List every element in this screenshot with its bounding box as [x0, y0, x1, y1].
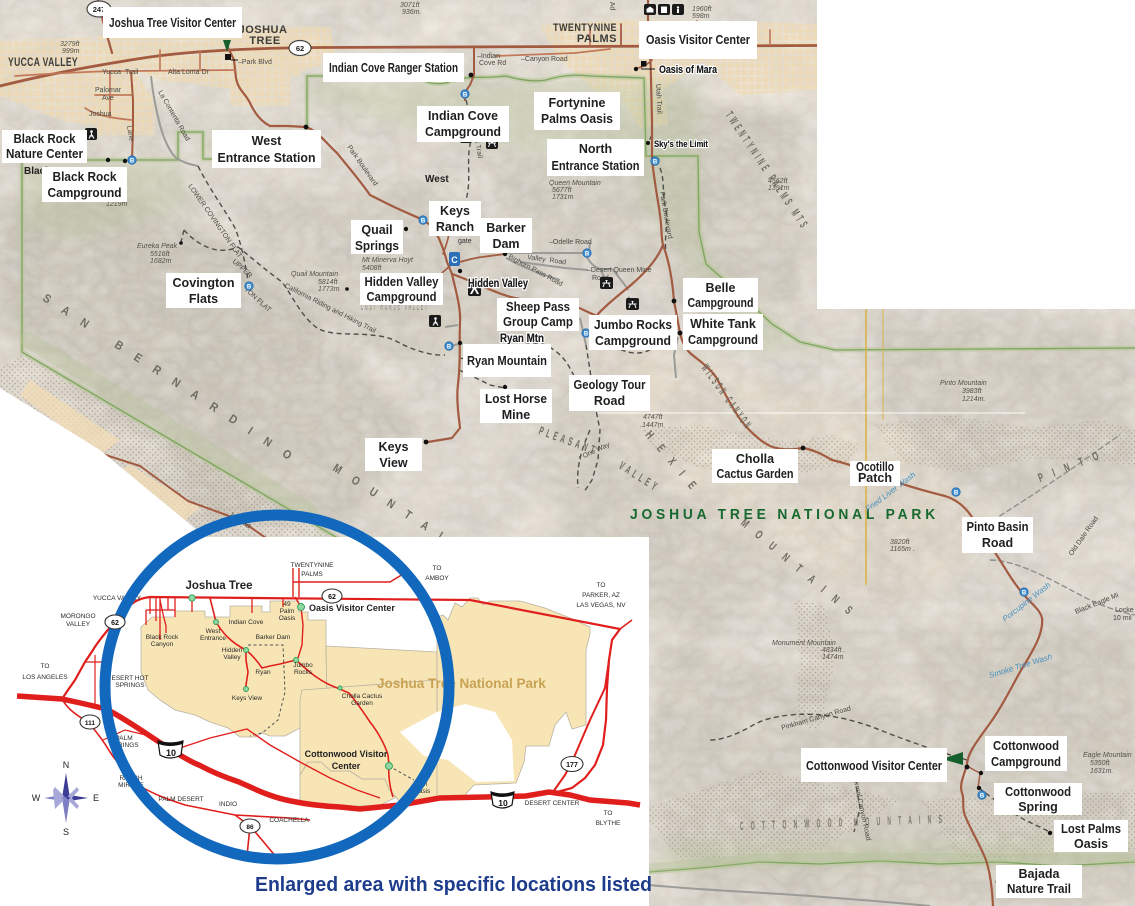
svg-text:Joshua Tree: Joshua Tree — [185, 580, 252, 592]
svg-text:B: B — [653, 160, 658, 166]
svg-text:B: B — [584, 332, 589, 338]
svg-text:5350ft: 5350ft — [1090, 760, 1111, 767]
svg-text:Black Rock: Black Rock — [146, 634, 179, 641]
svg-text:Oasis Visitor Center: Oasis Visitor Center — [646, 33, 750, 47]
svg-text:4834ft .: 4834ft . — [822, 647, 845, 654]
svg-text:B: B — [585, 252, 590, 258]
svg-text:Entrance Station: Entrance Station — [552, 159, 640, 173]
svg-text:3983ft: 3983ft — [962, 388, 983, 395]
svg-text:Ryan Mountain: Ryan Mountain — [467, 354, 547, 368]
svg-text:B: B — [1022, 591, 1027, 597]
svg-text:Oasis: Oasis — [1074, 837, 1108, 851]
svg-text:Ryan Mtn: Ryan Mtn — [500, 333, 544, 345]
svg-text:Queen Mountain: Queen Mountain — [549, 180, 601, 187]
svg-text:Covington: Covington — [173, 276, 235, 290]
svg-text:Geology Tour: Geology Tour — [574, 378, 646, 392]
svg-text:YUCCA VALLEY: YUCCA VALLEY — [8, 55, 78, 69]
svg-text:1214m.: 1214m. — [962, 396, 985, 403]
svg-text:BLYTHE: BLYTHE — [596, 820, 621, 827]
svg-text:Oasis Visitor Center: Oasis Visitor Center — [309, 603, 395, 613]
svg-text:C: C — [451, 255, 458, 265]
svg-text:PALMS: PALMS — [577, 33, 617, 45]
svg-text:.1447m: .1447m — [640, 422, 664, 429]
svg-text:Keys: Keys — [440, 204, 470, 218]
svg-text:Campground: Campground — [425, 125, 501, 139]
svg-text:MORONGO: MORONGO — [60, 613, 95, 620]
svg-text:Campground: Campground — [688, 296, 754, 310]
svg-text:Fortynine: Fortynine — [549, 96, 606, 110]
svg-text:W: W — [32, 793, 41, 803]
svg-text:Entrance: Entrance — [200, 635, 226, 642]
svg-text:INDIO: INDIO — [219, 801, 237, 808]
svg-text:Entrance Station: Entrance Station — [218, 151, 316, 165]
svg-text:Locke: Locke — [1115, 607, 1134, 614]
svg-text:Pinto Mountain: Pinto Mountain — [940, 380, 987, 387]
svg-text:Sky's the Limit: Sky's the Limit — [654, 139, 709, 150]
svg-text:TREE: TREE — [249, 35, 280, 47]
svg-text:Hidden Valley: Hidden Valley — [365, 275, 439, 289]
svg-text:–Indian: –Indian — [477, 53, 500, 60]
svg-text:Bajada: Bajada — [1019, 867, 1061, 881]
svg-text:Monument Mountain: Monument Mountain — [772, 640, 836, 647]
svg-text:JOSHUA TREE NATIONAL PARK: JOSHUA TREE NATIONAL PARK — [630, 507, 939, 523]
svg-text:177: 177 — [566, 762, 578, 769]
svg-text:86: 86 — [246, 824, 254, 831]
svg-text:Barker: Barker — [486, 221, 526, 235]
svg-text:–Odelle Road: –Odelle Road — [549, 239, 592, 246]
svg-text:AMBOY: AMBOY — [425, 575, 449, 582]
svg-text:B: B — [954, 491, 959, 497]
svg-text:Mine: Mine — [502, 408, 531, 422]
svg-text:Valley: Valley — [223, 654, 241, 661]
svg-text:4562ft: 4562ft — [768, 178, 789, 185]
svg-text:Ryan: Ryan — [255, 669, 271, 676]
svg-text:Palomar: Palomar — [95, 87, 122, 94]
svg-text:1731m: 1731m — [552, 194, 574, 201]
svg-text:Campground: Campground — [991, 755, 1061, 769]
svg-text:4747ft: 4747ft — [643, 414, 664, 421]
svg-text:Ranch: Ranch — [436, 220, 474, 234]
svg-text:5677ft: 5677ft — [552, 187, 573, 194]
svg-text:TO: TO — [433, 565, 442, 572]
svg-text:Enlarged area with specific lo: Enlarged area with specific locations li… — [255, 873, 652, 896]
svg-text:Patch: Patch — [858, 471, 892, 485]
svg-text:gate: gate — [458, 238, 472, 245]
svg-text:SPRINGS: SPRINGS — [115, 682, 145, 689]
svg-text:62: 62 — [296, 44, 304, 53]
svg-text:1682m: 1682m — [150, 258, 172, 265]
svg-text:North: North — [579, 142, 612, 156]
svg-text:1474m: 1474m — [822, 654, 844, 661]
svg-text:1165m .: 1165m . — [890, 546, 915, 553]
svg-text:E: E — [93, 793, 99, 803]
svg-text:–Desert Queen Mine: –Desert Queen Mine — [587, 267, 652, 274]
svg-text:Sheep Pass: Sheep Pass — [506, 300, 570, 314]
svg-text:Indian Cove Ranger Station: Indian Cove Ranger Station — [329, 61, 458, 75]
svg-text:Jumbo Rocks: Jumbo Rocks — [594, 318, 672, 332]
svg-text:B: B — [421, 219, 426, 225]
svg-text:Cholla Cactus: Cholla Cactus — [342, 693, 383, 700]
svg-text:1631m.: 1631m. — [1090, 768, 1113, 775]
svg-text:B: B — [980, 794, 985, 800]
svg-text:PARKER, AZ: PARKER, AZ — [582, 592, 620, 599]
svg-text:Ave: Ave — [102, 95, 114, 102]
svg-text:Canyon: Canyon — [151, 641, 174, 648]
svg-text:62: 62 — [111, 620, 119, 627]
svg-text:Cottonwood Visitor: Cottonwood Visitor — [305, 749, 388, 759]
svg-text:Pinto Basin: Pinto Basin — [967, 520, 1029, 534]
svg-text:Eagle Mountain: Eagle Mountain — [1083, 752, 1132, 759]
svg-text:N: N — [63, 760, 70, 770]
svg-text:Quail: Quail — [361, 223, 392, 237]
svg-text:Dam: Dam — [492, 237, 519, 251]
svg-text:Road: Road — [982, 536, 1013, 550]
svg-text:TO: TO — [604, 810, 613, 817]
svg-text:S: S — [63, 827, 69, 837]
svg-text:West: West — [206, 628, 221, 635]
svg-text:Center: Center — [332, 761, 361, 771]
svg-text:–Park Blvd: –Park Blvd — [238, 59, 272, 66]
svg-text:Lost Palms: Lost Palms — [1061, 822, 1121, 836]
svg-text:West: West — [425, 174, 449, 185]
svg-text:White Tank: White Tank — [690, 317, 756, 331]
svg-text:10 mil: 10 mil — [1113, 615, 1132, 622]
svg-text:3820ft: 3820ft — [890, 539, 911, 546]
svg-text:B: B — [463, 93, 468, 99]
svg-text:Campground: Campground — [688, 333, 758, 347]
svg-text:Cottonwood: Cottonwood — [993, 739, 1059, 753]
svg-text:10: 10 — [166, 748, 176, 758]
svg-text:TO: TO — [597, 582, 606, 589]
svg-text:Cove Rd: Cove Rd — [479, 60, 506, 67]
svg-text:Group Camp: Group Camp — [503, 315, 573, 329]
svg-text:49: 49 — [283, 601, 291, 608]
svg-text:Palm: Palm — [280, 608, 295, 615]
svg-text:Cottonwood: Cottonwood — [1005, 785, 1071, 799]
svg-text:Joshua Tree Visitor Center: Joshua Tree Visitor Center — [109, 16, 236, 30]
svg-text:Joshua: Joshua — [89, 111, 112, 118]
svg-text:View: View — [379, 456, 408, 470]
svg-text:1960ft: 1960ft — [692, 6, 713, 13]
svg-text:111: 111 — [85, 720, 96, 727]
svg-text:Cottonwood Visitor Center: Cottonwood Visitor Center — [806, 759, 942, 773]
svg-text:TO: TO — [41, 663, 50, 670]
svg-text:1773m: 1773m — [318, 286, 340, 293]
svg-text:5408ft: 5408ft — [362, 265, 383, 272]
svg-text:Indian Cove: Indian Cove — [428, 109, 498, 123]
svg-text:Keys: Keys — [379, 440, 409, 454]
svg-text:ESERT HOT: ESERT HOT — [112, 675, 149, 682]
svg-text:VALLEY: VALLEY — [66, 621, 91, 628]
svg-text:Alta Loma Dr: Alta Loma Dr — [168, 69, 210, 76]
svg-text:10: 10 — [498, 798, 508, 808]
svg-text:B: B — [247, 285, 252, 291]
svg-text:Hidden Valley: Hidden Valley — [468, 278, 528, 290]
svg-text:Yucca Trail: Yucca Trail — [102, 69, 139, 76]
svg-text:Oasis: Oasis — [279, 615, 296, 622]
svg-text:PALMS: PALMS — [301, 571, 323, 578]
svg-text:Campground: Campground — [595, 334, 671, 348]
svg-text:Ad: Ad — [608, 2, 616, 11]
svg-text:Garden: Garden — [351, 700, 373, 707]
svg-text:Lost Horse: Lost Horse — [485, 392, 547, 406]
svg-text:Belle: Belle — [706, 281, 736, 295]
svg-text:Rocks: Rocks — [294, 669, 313, 676]
svg-text:Black Rock: Black Rock — [53, 170, 117, 184]
svg-text:Jumbo: Jumbo — [293, 662, 313, 669]
svg-text:Flats: Flats — [189, 292, 218, 306]
svg-text:Mt Minerva Hoyt: Mt Minerva Hoyt — [362, 257, 414, 264]
svg-text:Oasis of Mara: Oasis of Mara — [659, 64, 718, 76]
svg-text:Springs: Springs — [355, 239, 399, 253]
svg-text:TWENTYNINE: TWENTYNINE — [291, 562, 335, 569]
svg-text:Nature Trail: Nature Trail — [1007, 882, 1071, 896]
svg-text:PALM DESERT: PALM DESERT — [158, 796, 203, 803]
svg-text:B: B — [447, 345, 452, 351]
svg-text:1391m: 1391m — [768, 185, 790, 192]
svg-text:LOS ANGELES: LOS ANGELES — [22, 674, 68, 681]
svg-text:5814ft: 5814ft — [318, 279, 339, 286]
svg-text:3071ft: 3071ft — [400, 2, 421, 9]
svg-text:936m.: 936m. — [402, 9, 422, 16]
svg-text:Spring: Spring — [1018, 800, 1058, 814]
svg-text:Cholla: Cholla — [736, 452, 775, 466]
svg-text:Campground: Campground — [367, 290, 437, 304]
svg-text:598m: 598m — [692, 13, 710, 20]
svg-text:Quail Mountain: Quail Mountain — [291, 271, 338, 278]
svg-text:Palms Oasis: Palms Oasis — [541, 112, 613, 126]
svg-text:Barker Dam: Barker Dam — [256, 634, 291, 641]
svg-text:DESERT CENTER: DESERT CENTER — [525, 800, 580, 807]
svg-text:Cactus Garden: Cactus Garden — [717, 467, 794, 481]
svg-text:Road: Road — [594, 394, 625, 408]
svg-text:West: West — [252, 134, 282, 148]
svg-text:Eureka Peak: Eureka Peak — [137, 243, 178, 250]
svg-text:5516ft: 5516ft — [150, 251, 171, 258]
svg-text:–Canyon Road: –Canyon Road — [521, 56, 568, 63]
svg-text:Hidden: Hidden — [222, 647, 243, 654]
svg-text:Indian Cove: Indian Cove — [229, 619, 264, 626]
svg-text:62: 62 — [328, 594, 336, 601]
svg-text:1219m: 1219m — [106, 201, 128, 208]
svg-text:Campground: Campground — [48, 186, 122, 200]
svg-text:B: B — [130, 159, 135, 165]
svg-text:LAS VEGAS, NV: LAS VEGAS, NV — [576, 602, 626, 609]
svg-text:999m: 999m — [62, 48, 80, 55]
svg-text:Black Rock: Black Rock — [14, 132, 76, 146]
svg-text:Nature Center: Nature Center — [6, 147, 83, 161]
svg-text:Keys View: Keys View — [232, 695, 263, 702]
svg-text:3279ft: 3279ft — [60, 41, 81, 48]
svg-text:COACHELLA: COACHELLA — [269, 817, 309, 824]
svg-text:Joshua Tree National Park: Joshua Tree National Park — [377, 676, 546, 691]
